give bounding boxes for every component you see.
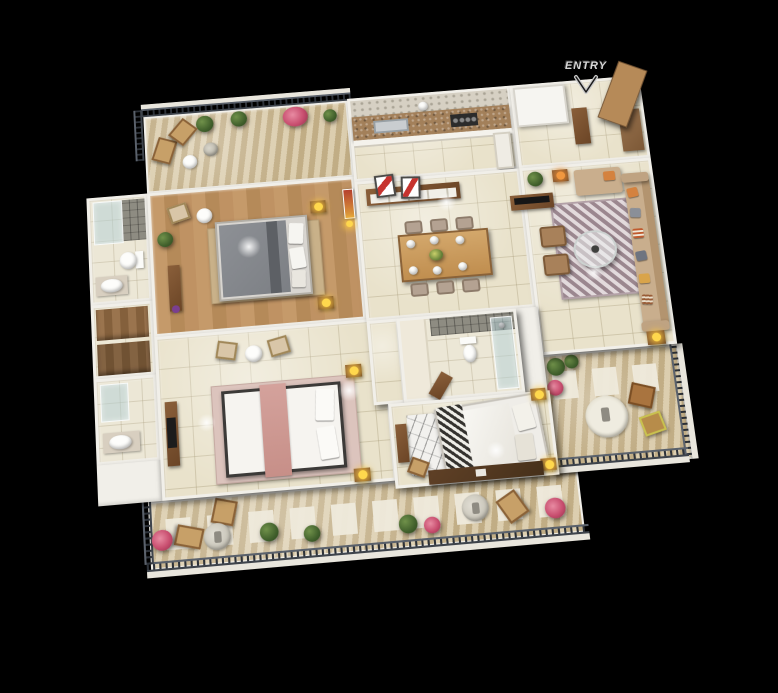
cushion bbox=[638, 273, 650, 283]
statue bbox=[214, 531, 222, 543]
lounge-chair bbox=[151, 137, 177, 165]
potted-plant bbox=[230, 111, 247, 128]
cushion bbox=[632, 228, 644, 238]
floor-plan-render: ENTRY bbox=[0, 0, 778, 693]
tall-plant bbox=[157, 231, 174, 247]
bedroom-2 bbox=[388, 390, 560, 489]
bathroom-3 bbox=[396, 309, 525, 403]
bathroom-2 bbox=[93, 374, 160, 465]
bathroom-1 bbox=[86, 194, 152, 306]
dining-chair bbox=[462, 278, 481, 293]
toilet bbox=[462, 344, 477, 363]
toilet bbox=[119, 251, 137, 269]
lounge-chair bbox=[174, 524, 205, 549]
round-table bbox=[182, 155, 197, 170]
round-side-table bbox=[196, 208, 213, 224]
master-bedroom bbox=[154, 318, 397, 501]
wicker-chair bbox=[628, 382, 656, 409]
television bbox=[166, 417, 177, 448]
pillow bbox=[514, 433, 536, 461]
potted-plant bbox=[564, 354, 580, 369]
bathroom-door bbox=[429, 371, 453, 400]
shower-tile-wall bbox=[121, 198, 147, 241]
flower-vase bbox=[172, 305, 180, 313]
entry-marker: ENTRY bbox=[556, 60, 616, 101]
pillow bbox=[288, 223, 303, 244]
pillow bbox=[292, 270, 306, 287]
dining-chair bbox=[436, 280, 455, 295]
balcony-right bbox=[541, 344, 693, 471]
shrine-lamp bbox=[346, 220, 353, 227]
glass-shower bbox=[100, 383, 130, 423]
shrine-art-ganesha bbox=[342, 189, 355, 219]
red-artwork bbox=[374, 174, 397, 198]
statue bbox=[601, 407, 611, 422]
armchair bbox=[267, 335, 291, 358]
corner-plant bbox=[527, 171, 544, 187]
balcony-railing-left bbox=[142, 502, 154, 565]
potted-plant bbox=[303, 524, 321, 542]
dining-chair bbox=[410, 282, 429, 297]
entry-arrow-down-icon bbox=[572, 74, 600, 96]
ottoman bbox=[539, 225, 567, 248]
round-table bbox=[245, 345, 263, 363]
glass-shower bbox=[92, 200, 123, 245]
armchair bbox=[215, 341, 238, 361]
glass-shower-partition bbox=[490, 316, 520, 390]
statue-planter bbox=[203, 142, 218, 157]
potted-plant bbox=[196, 115, 214, 133]
walk-in-wardrobe bbox=[91, 301, 157, 380]
cushion bbox=[630, 208, 641, 217]
pink-flower-bush bbox=[423, 516, 441, 534]
entry-label: ENTRY bbox=[556, 60, 616, 72]
bath-lobby bbox=[400, 319, 434, 399]
cushion bbox=[642, 294, 653, 304]
red-artwork bbox=[401, 176, 421, 198]
tall-kitchen-unit bbox=[493, 132, 515, 170]
desk-accessory bbox=[475, 469, 486, 477]
living-room bbox=[519, 158, 677, 356]
pink-flower-bush bbox=[282, 106, 309, 128]
statue bbox=[472, 502, 480, 514]
sofa-chaise bbox=[573, 167, 623, 197]
potted-plant bbox=[398, 514, 418, 534]
cushion bbox=[603, 171, 616, 181]
cushion bbox=[635, 250, 648, 261]
wooden-wardrobe bbox=[96, 306, 149, 341]
pillow bbox=[316, 389, 335, 421]
folding-chair bbox=[639, 411, 667, 437]
wall-filler bbox=[97, 460, 163, 506]
lounge-chair bbox=[211, 498, 238, 526]
potted-plant bbox=[323, 109, 338, 123]
dining-room bbox=[354, 168, 535, 321]
toilet-tank bbox=[460, 336, 477, 344]
foyer-cabinet bbox=[571, 107, 591, 144]
ottoman bbox=[542, 253, 570, 276]
wooden-wardrobe bbox=[97, 341, 151, 377]
apartment-plan bbox=[83, 75, 703, 577]
armchair bbox=[167, 202, 191, 224]
kitchen bbox=[347, 86, 519, 182]
hob bbox=[450, 113, 478, 128]
bedroom-1 bbox=[147, 176, 366, 337]
balcony-railing-left bbox=[133, 110, 144, 161]
